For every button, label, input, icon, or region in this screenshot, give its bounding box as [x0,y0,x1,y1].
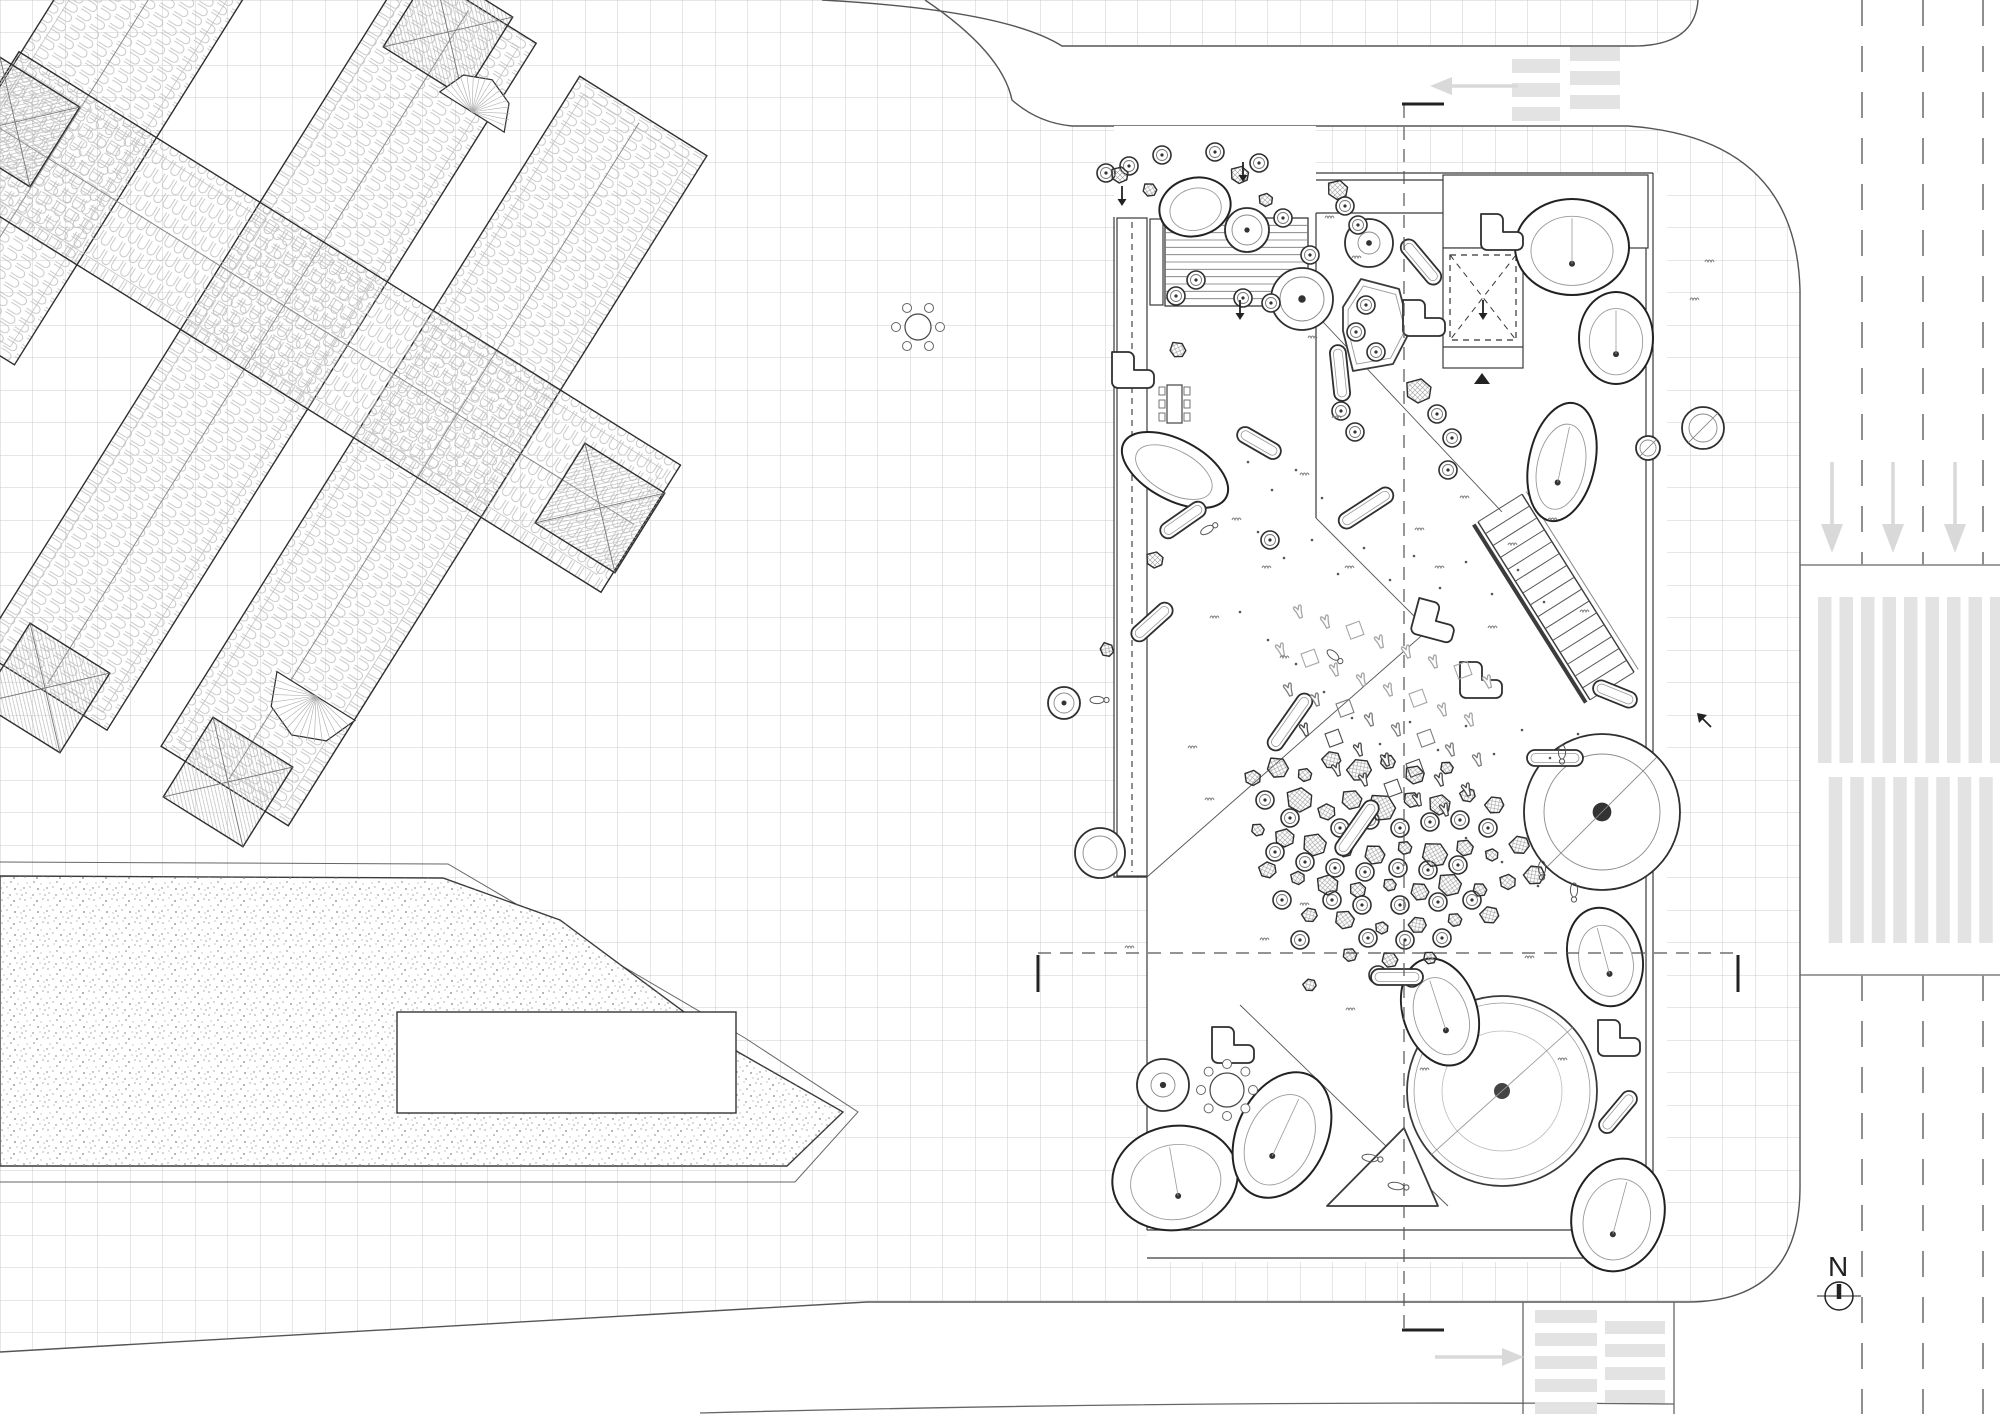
shrub-dot [1303,860,1306,863]
gravel-dot [1491,593,1494,596]
tree-trunk-dot [1160,1082,1166,1088]
crosswalk-stripe [1605,1390,1665,1403]
tree-trunk-dot [1244,227,1249,232]
shrub-dot [1440,936,1443,939]
chair [936,323,945,332]
shrub-dot [1330,898,1333,901]
shrub-dot [1268,538,1271,541]
shrub [1367,343,1385,361]
shrub-dot [1308,253,1311,256]
lane-arrow-head [1944,524,1966,553]
crosswalk-stripe [1605,1367,1665,1380]
chair [1204,1067,1213,1076]
chair [1159,387,1165,395]
gravel-dot [1283,557,1286,560]
crosswalk-stripe [1512,107,1560,121]
shrub-dot [1241,296,1244,299]
lane-arrow-head [1882,524,1904,553]
chair [1241,1104,1250,1113]
bench-seat [1527,750,1583,766]
shrub [1429,893,1447,911]
shrub-dot [1333,866,1336,869]
chair [1249,1086,1258,1095]
crosswalk-stripe [1535,1402,1597,1414]
shrub [1153,146,1171,164]
shrub-dot [1366,936,1369,939]
gravel-dot [1493,753,1496,756]
gravel-dot [1439,587,1442,590]
chair [1204,1104,1213,1113]
ramp-wall [1150,219,1163,305]
gravel-dot [1267,639,1270,642]
shrub-dot [1456,863,1459,866]
gravel-dot [1271,489,1274,492]
crosswalk-stripe [1883,597,1897,763]
shrub-dot [1288,816,1291,819]
bench [1527,750,1583,766]
gravel-dot [1295,663,1298,666]
crosswalk-stripe [1570,47,1620,61]
tree-trunk-dot [1366,240,1372,246]
gravel-dot [1379,743,1382,746]
shrub [1291,931,1309,949]
shrub [1273,891,1291,909]
tree-canopy [1075,828,1125,878]
shrub-dot [1364,303,1367,306]
shrub [1421,813,1439,831]
north-indicator: N [1817,1251,1861,1310]
shrub [1433,929,1451,947]
shrub-dot [1273,850,1276,853]
shrub-dot [1281,216,1284,219]
chair [903,342,912,351]
shrub-dot [1396,866,1399,869]
crosswalk-stripe [1861,597,1875,763]
chair [1223,1060,1232,1069]
shrub [1167,287,1185,305]
gravel-dot [1351,717,1354,720]
gravel-dot [1543,601,1546,604]
shrub [1206,143,1224,161]
gravel-dot [1389,579,1392,582]
gravel-dot [1517,569,1520,572]
crosswalk-stripe [1535,1379,1597,1392]
tree [1225,208,1269,252]
shrub-dot [1257,161,1260,164]
bench [1371,969,1423,985]
crosswalk-stripe [1605,1321,1665,1334]
table-set [1197,1060,1258,1121]
shrub-dot [1338,826,1341,829]
shrub-dot [1194,278,1197,281]
shrub-dot [1339,409,1342,412]
shrub-dot [1263,798,1266,801]
tree [1137,1059,1189,1111]
tree-trunk-dot [1062,701,1067,706]
shrub [1274,209,1292,227]
shrub-dot [1298,938,1301,941]
shrub [1428,405,1446,423]
gravel-dot [1537,885,1540,888]
shrub-dot [1470,898,1473,901]
chair [1184,413,1190,421]
shrub [1353,896,1371,914]
gravel-dot [1577,733,1580,736]
gravel-dot [1311,539,1314,542]
chair [892,323,901,332]
gravel-dot [1465,725,1468,728]
shrub-dot [1280,898,1283,901]
shrub-dot [1446,468,1449,471]
shrub [1234,289,1252,307]
tree [1075,828,1125,878]
gravel-dot [1409,721,1412,724]
crosswalk-stripe [1512,59,1560,73]
tree [1515,199,1629,295]
gravel-clearing-rect [397,1012,736,1113]
crosswalk-stripe [1535,1333,1597,1346]
shrub-dot [1458,818,1461,821]
crosswalk-stripe [1605,1344,1665,1357]
shrub-dot [1343,204,1346,207]
table-set [1159,385,1190,423]
shrub [1359,929,1377,947]
shrub [1326,859,1344,877]
shrub [1256,791,1274,809]
shrub [1261,531,1279,549]
gravel-dot [1295,469,1298,472]
kerb-line [700,1403,1674,1413]
round-table [1210,1073,1244,1107]
turn-arrow-head [1502,1348,1524,1366]
crosswalk-stripe [1990,597,2000,763]
shrub-dot [1398,826,1401,829]
north-label: N [1828,1251,1848,1282]
crosswalk-stripe [1850,777,1864,943]
tree [1682,407,1724,449]
shrub-dot [1104,171,1107,174]
gravel-dot [1363,547,1366,550]
crosswalk-stripe [1926,597,1940,763]
shrub-dot [1269,301,1272,304]
gravel-dot [1321,497,1324,500]
crosswalk-stripe [1570,71,1620,85]
shrub-dot [1428,820,1431,823]
crosswalk-stripe [1512,83,1560,97]
shrub [1281,809,1299,827]
chair [903,303,912,312]
crosswalk-stripe [1958,777,1972,943]
shrub [1391,896,1409,914]
shrub-dot [1213,150,1216,153]
crosswalk-stripe [1979,777,1993,943]
chair [1197,1086,1206,1095]
tree [1048,687,1080,719]
chair [925,303,934,312]
chair [925,342,934,351]
gravel-dot [1521,729,1524,732]
shrub-dot [1127,164,1130,167]
shrub [1262,294,1280,312]
shrub [1336,197,1354,215]
crosswalk-stripe [1829,777,1843,943]
gravel-dot [1323,691,1326,694]
shrub-dot [1486,826,1489,829]
crosswalk-stripe [1893,777,1907,943]
shrub [1301,246,1319,264]
gravel-dot [1465,837,1468,840]
crosswalk-stripe [1947,597,1961,763]
shrub [1347,323,1365,341]
chair [1184,387,1190,395]
shrub-dot [1450,436,1453,439]
shrub [1346,423,1364,441]
shrub [1479,819,1497,837]
crosswalk-stripe [1872,777,1886,943]
crosswalk-stripe [1570,95,1620,109]
shrub-dot [1363,870,1366,873]
shrub [1349,216,1367,234]
round-table [905,314,931,340]
shrub [1356,863,1374,881]
shrub [1439,461,1457,479]
shrub-dot [1174,294,1177,297]
shrub [1357,296,1375,314]
chair [1159,400,1165,408]
shrub [1449,856,1467,874]
crosswalk-stripe [1535,1310,1597,1323]
crosswalk-stripe [1969,597,1983,763]
chair [1159,413,1165,421]
crosswalk-stripe [1818,597,1832,763]
site-plan-drawing: N [0,0,2000,1414]
gravel-dot [1239,611,1242,614]
shrub [1396,931,1414,949]
chair [1241,1067,1250,1076]
shrub [1391,819,1409,837]
shrub-dot [1360,903,1363,906]
shrub [1250,154,1268,172]
shrub-dot [1435,412,1438,415]
bench-seat [1371,969,1423,985]
shrub-dot [1426,868,1429,871]
crosswalk-stripe [1915,777,1929,943]
gravel-dot [1337,573,1340,576]
tree [1636,436,1660,460]
shrub-dot [1356,223,1359,226]
site-plan-canvas: N [0,0,2000,1414]
shrub [1451,811,1469,829]
gravel-dot [1413,555,1416,558]
shrub-dot [1398,903,1401,906]
shrub-dot [1353,430,1356,433]
gravel-dot [1437,749,1440,752]
gravel-dot [1549,757,1552,760]
gravel-dot [1501,861,1504,864]
crosswalk-stripe [1535,1356,1597,1369]
tree [1579,292,1653,384]
shrub-dot [1374,350,1377,353]
gravel-dot [1257,531,1260,534]
crosswalk-stripe [1904,597,1918,763]
rect-table [1167,385,1182,423]
gravel-dot [1465,561,1468,564]
turn-arrow-head [1430,77,1452,95]
shrub [1443,429,1461,447]
chair [1184,400,1190,408]
chair [1223,1112,1232,1121]
tree-trunk-dot [1298,295,1305,302]
shrub-dot [1436,900,1439,903]
crosswalk-stripe [1936,777,1950,943]
lane-arrow-head [1821,524,1843,553]
tree [1271,268,1333,330]
shrub [1296,853,1314,871]
shrub-dot [1160,153,1163,156]
crosswalk-stripe [1840,597,1854,763]
gravel-dot [1247,461,1250,464]
shrub [1187,271,1205,289]
shrub-dot [1354,330,1357,333]
